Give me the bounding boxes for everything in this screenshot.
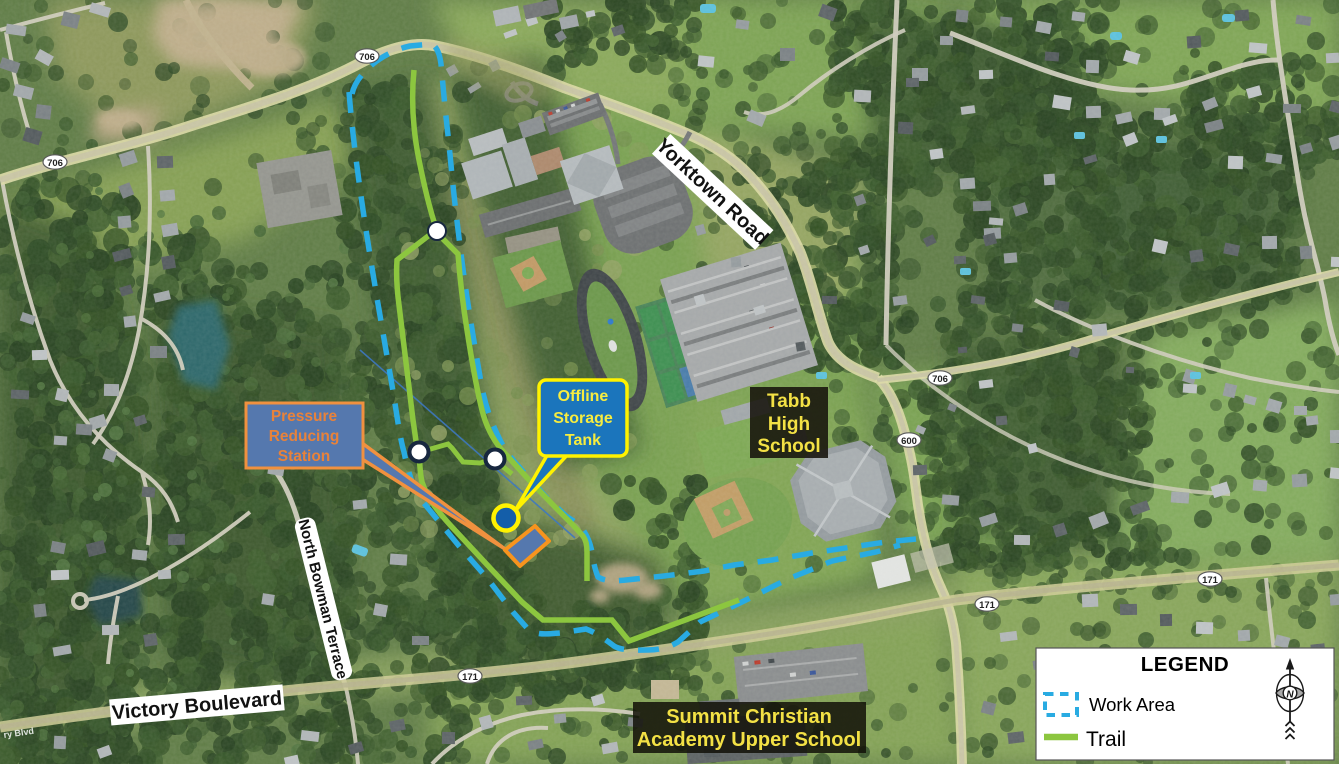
svg-text:Summit Christian: Summit Christian: [666, 706, 832, 728]
svg-text:Storage: Storage: [553, 410, 613, 427]
svg-text:High: High: [768, 414, 810, 435]
svg-text:171: 171: [462, 672, 479, 683]
svg-text:171: 171: [979, 600, 996, 611]
svg-text:600: 600: [901, 436, 917, 447]
svg-text:Trail: Trail: [1086, 728, 1126, 751]
svg-text:Offline: Offline: [558, 388, 609, 405]
svg-text:706: 706: [359, 52, 375, 63]
svg-text:171: 171: [1202, 575, 1219, 586]
svg-text:706: 706: [932, 374, 948, 385]
svg-text:N: N: [1286, 690, 1294, 701]
svg-text:Reducing: Reducing: [269, 428, 340, 445]
svg-text:706: 706: [47, 158, 63, 169]
svg-text:Work Area: Work Area: [1089, 694, 1176, 715]
svg-text:LEGEND: LEGEND: [1141, 653, 1229, 676]
svg-text:Station: Station: [278, 448, 331, 465]
svg-text:Tank: Tank: [565, 432, 601, 449]
svg-text:School: School: [757, 436, 820, 457]
svg-text:Tabb: Tabb: [767, 391, 811, 412]
svg-text:Academy Upper School: Academy Upper School: [637, 729, 862, 751]
svg-text:Pressure: Pressure: [271, 408, 338, 425]
